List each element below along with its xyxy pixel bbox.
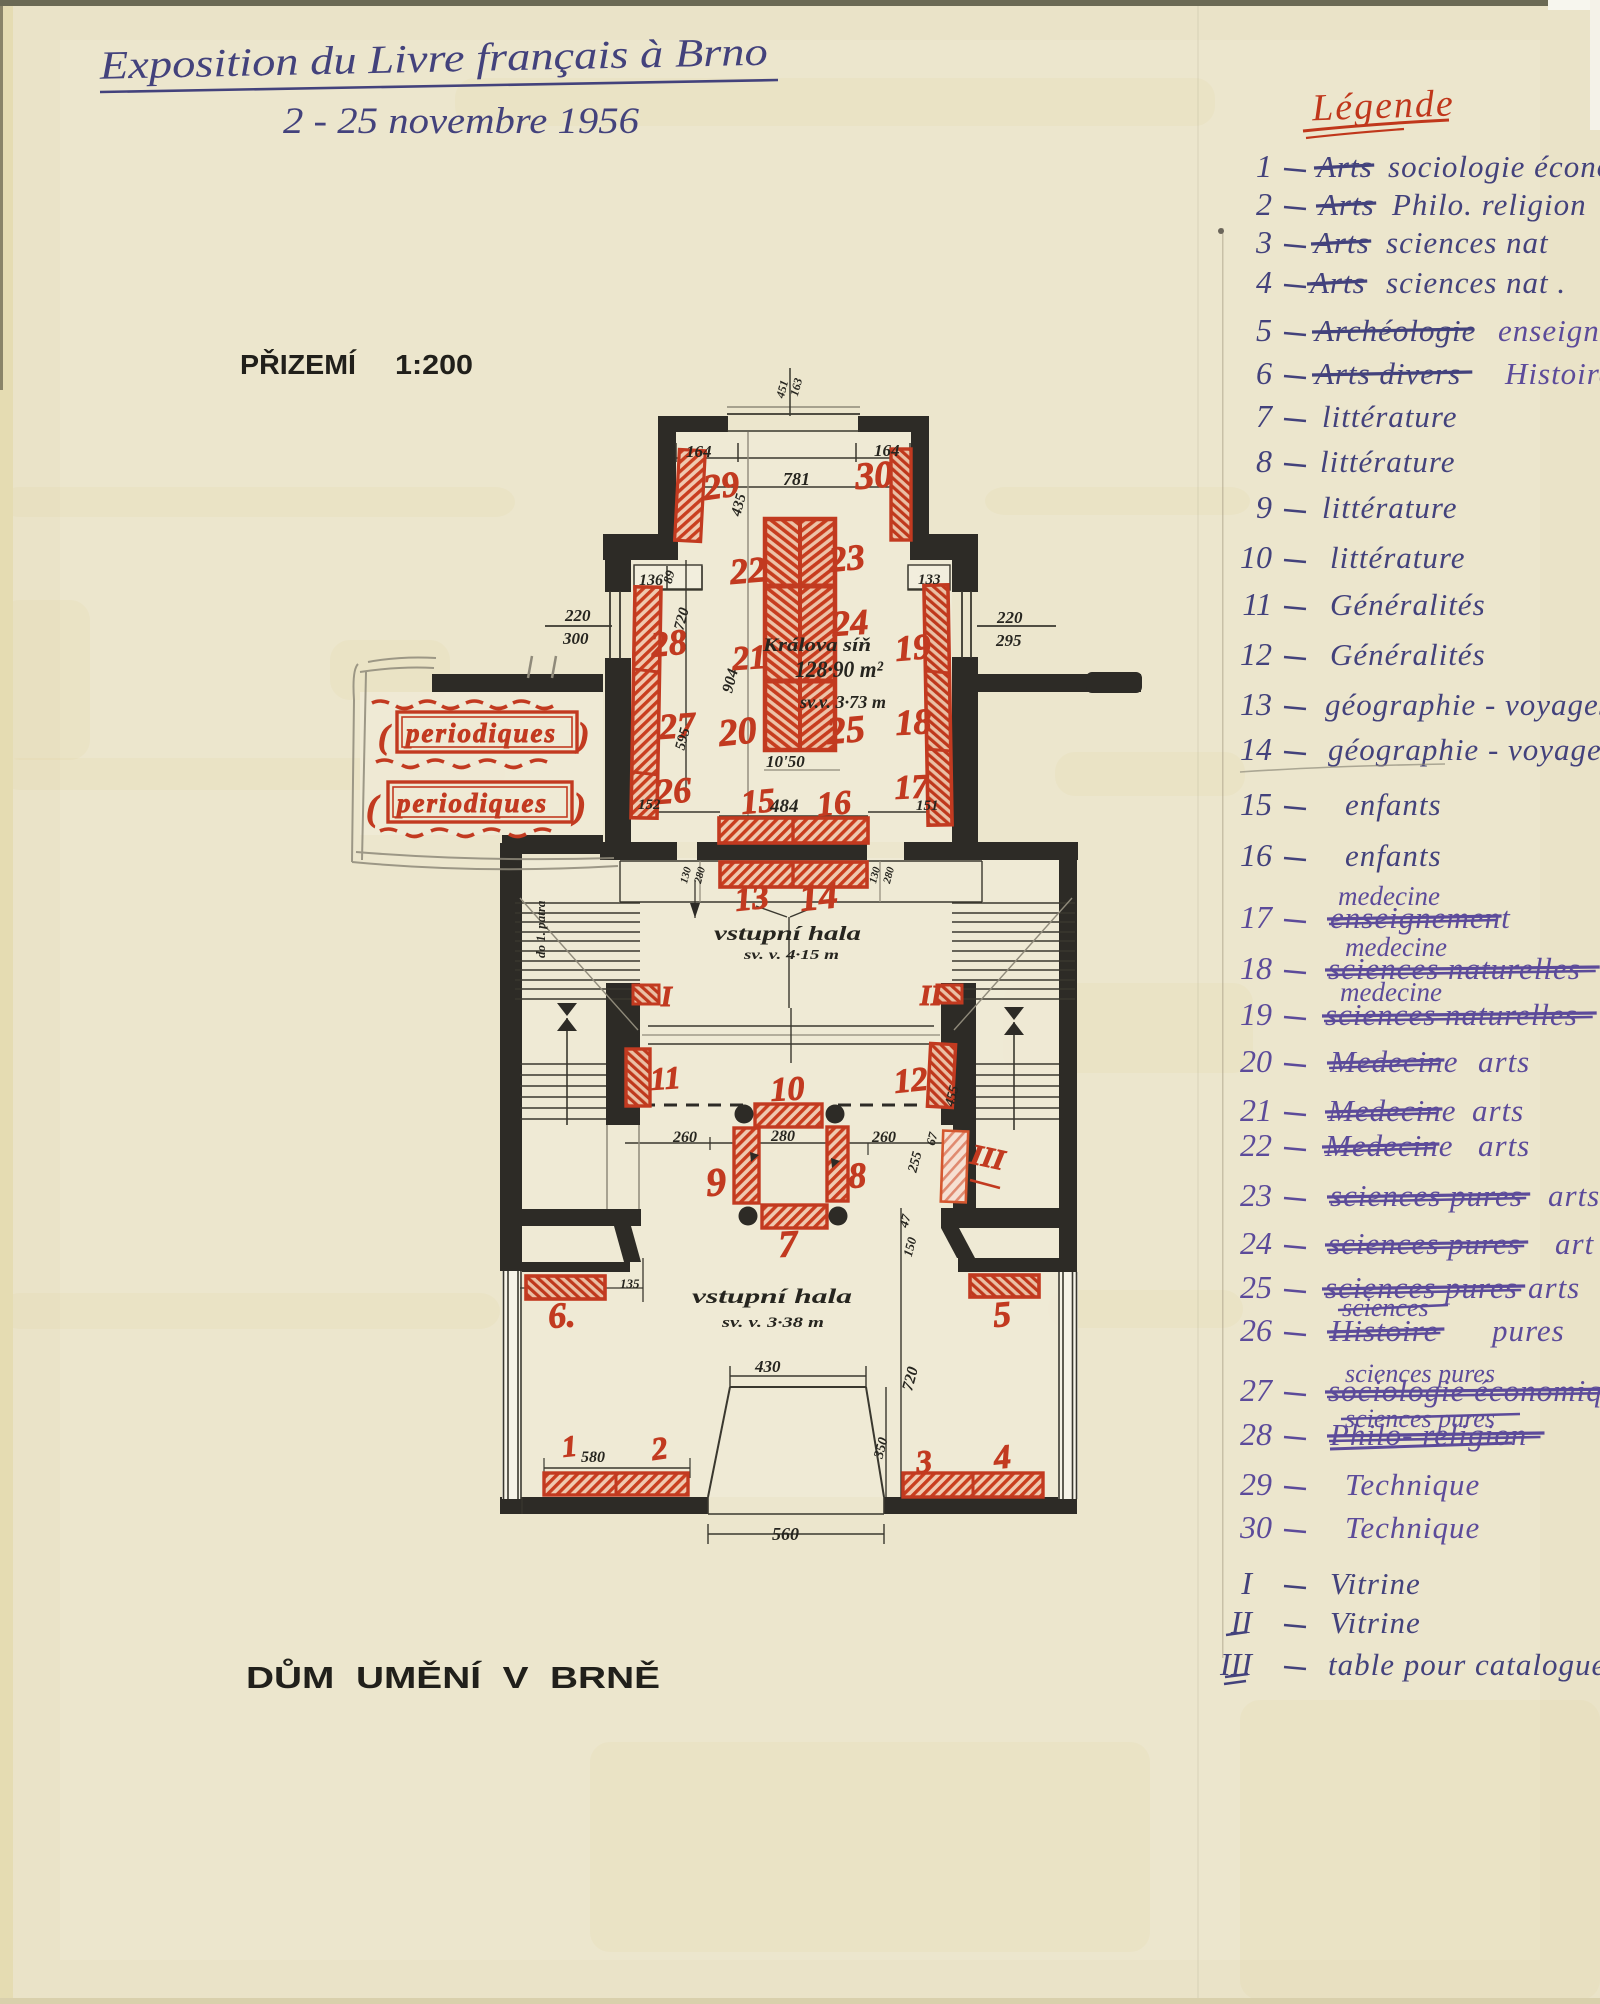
svg-text:do 1. patra: do 1. patra (533, 900, 548, 958)
svg-text:sciences nat .: sciences nat . (1386, 265, 1566, 300)
svg-text:17: 17 (1240, 899, 1274, 935)
svg-text:18: 18 (1240, 950, 1272, 986)
svg-text:151: 151 (916, 798, 939, 814)
svg-text:Králova síň: Králova síň (762, 635, 871, 656)
svg-text:DŮM UMĚNÍ V BRNĚ: DŮM UMĚNÍ V BRNĚ (246, 1657, 660, 1695)
svg-text:enfants: enfants (1345, 787, 1442, 822)
svg-text:260: 260 (672, 1129, 697, 1146)
svg-text:medecine: medecine (1340, 977, 1442, 1007)
svg-text:14: 14 (1240, 731, 1272, 767)
svg-text:11: 11 (1242, 586, 1272, 622)
svg-text:Technique: Technique (1345, 1510, 1480, 1545)
svg-text:29: 29 (1240, 1466, 1272, 1502)
svg-text:Philo. religion: Philo. religion (1391, 187, 1587, 222)
svg-text:vstupní hala: vstupní hala (714, 923, 861, 945)
svg-text:484: 484 (769, 796, 799, 817)
svg-text:sv. v. 3·38 m: sv. v. 3·38 m (721, 1315, 824, 1331)
svg-text:6.: 6. (547, 1294, 577, 1336)
svg-text:781: 781 (783, 469, 810, 489)
svg-text:10'50: 10'50 (766, 752, 805, 771)
svg-text:7: 7 (1256, 398, 1274, 434)
svg-text:medecine: medecine (1338, 881, 1440, 911)
svg-text:220: 220 (564, 606, 591, 625)
svg-text:1:200: 1:200 (395, 349, 473, 380)
svg-text:128·90 m²: 128·90 m² (795, 657, 884, 682)
svg-text:430: 430 (754, 1357, 781, 1376)
svg-text:periodiques: periodiques (404, 718, 557, 748)
svg-text:Vitrine: Vitrine (1330, 1566, 1421, 1601)
svg-text:220: 220 (996, 608, 1023, 627)
svg-text:133: 133 (918, 572, 941, 588)
svg-text:arts: arts (1548, 1178, 1600, 1213)
svg-text:18: 18 (894, 701, 932, 743)
svg-text:5: 5 (991, 1294, 1012, 1335)
svg-text:Généralités: Généralités (1330, 637, 1486, 672)
svg-text:10: 10 (1240, 539, 1272, 575)
svg-text:5: 5 (1256, 312, 1272, 348)
svg-text:21: 21 (1240, 1092, 1272, 1128)
svg-text:4: 4 (1256, 264, 1272, 300)
svg-text:sv. v. 4·15 m: sv. v. 4·15 m (743, 948, 840, 963)
svg-text:14: 14 (798, 874, 840, 920)
svg-text:20: 20 (716, 709, 759, 755)
svg-text:6: 6 (1256, 355, 1272, 391)
svg-text:8: 8 (1256, 443, 1272, 479)
svg-text:26: 26 (1240, 1312, 1272, 1348)
svg-text:PŘIZEMÍ: PŘIZEMÍ (240, 349, 357, 380)
svg-text:560: 560 (772, 1524, 799, 1544)
svg-text:arts: arts (1478, 1128, 1530, 1163)
svg-text:sociologie économ: sociologie économ (1388, 149, 1600, 184)
svg-text:enfants: enfants (1345, 838, 1442, 873)
svg-text:Généralités: Généralités (1330, 587, 1486, 622)
svg-text:19: 19 (1240, 996, 1272, 1032)
svg-text:géographie - voyages: géographie - voyages (1325, 687, 1600, 722)
svg-text:24: 24 (1240, 1225, 1272, 1261)
svg-text:8: 8 (847, 1155, 868, 1196)
svg-text:arts: arts (1528, 1270, 1580, 1305)
svg-text:10: 10 (769, 1070, 805, 1109)
svg-text:152: 152 (638, 797, 661, 813)
svg-text:littérature: littérature (1322, 399, 1458, 434)
svg-text:I: I (660, 982, 673, 1013)
svg-text:580: 580 (581, 1449, 605, 1466)
svg-text:19: 19 (893, 626, 932, 669)
svg-text:II: II (919, 981, 943, 1012)
svg-text:vstupní hala: vstupní hala (692, 1284, 852, 1308)
svg-text:littérature: littérature (1330, 540, 1466, 575)
svg-text:22: 22 (1240, 1127, 1272, 1163)
svg-text:164: 164 (686, 442, 712, 461)
svg-text:13: 13 (1240, 686, 1272, 722)
svg-text:I: I (1240, 1565, 1253, 1601)
svg-text:medecine: medecine (1345, 932, 1447, 962)
svg-text:12: 12 (892, 1061, 930, 1101)
svg-text:25: 25 (824, 708, 867, 753)
svg-text:13: 13 (733, 879, 771, 919)
svg-text:30: 30 (853, 453, 895, 498)
svg-text:15: 15 (1240, 786, 1272, 822)
svg-text:): ) (575, 717, 589, 754)
svg-text:Technique: Technique (1345, 1467, 1480, 1502)
svg-text:30: 30 (1239, 1509, 1272, 1545)
svg-text:164: 164 (874, 441, 900, 460)
svg-text:12: 12 (1240, 636, 1272, 672)
svg-text:16: 16 (815, 784, 852, 824)
svg-text:3: 3 (1255, 224, 1272, 260)
svg-text:28: 28 (1240, 1416, 1272, 1452)
svg-text:arts: arts (1478, 1044, 1530, 1079)
svg-text:periodiques: periodiques (395, 788, 548, 818)
svg-text:Légende: Légende (1310, 82, 1455, 129)
svg-text:2: 2 (1256, 186, 1272, 222)
svg-text:2 - 25 novembre 1956: 2 - 25 novembre 1956 (283, 101, 640, 142)
svg-text:23: 23 (826, 536, 867, 580)
svg-text:22: 22 (727, 549, 767, 592)
svg-text:enseign.: enseign. (1498, 313, 1600, 348)
svg-text:): ) (571, 786, 586, 826)
svg-text:géographie - voyages: géographie - voyages (1328, 732, 1600, 767)
svg-text:1: 1 (1256, 148, 1272, 184)
svg-text:20: 20 (1240, 1043, 1272, 1079)
svg-text:9: 9 (1256, 489, 1272, 525)
svg-text:sv.v. 3·73 m: sv.v. 3·73 m (799, 692, 886, 712)
svg-text:littérature: littérature (1320, 444, 1456, 479)
svg-text:16: 16 (1240, 837, 1272, 873)
svg-text:sciences pures: sciences pures (1345, 1359, 1495, 1388)
svg-text:300: 300 (562, 629, 589, 648)
svg-text:27: 27 (1240, 1372, 1274, 1408)
svg-text:25: 25 (1240, 1269, 1272, 1305)
svg-text:art: art (1555, 1226, 1595, 1261)
svg-text:23: 23 (1240, 1177, 1272, 1213)
svg-text:Vitrine: Vitrine (1330, 1605, 1421, 1640)
svg-text:9: 9 (704, 1159, 727, 1205)
svg-text:280: 280 (770, 1128, 795, 1145)
svg-text:sciences nat: sciences nat (1386, 225, 1549, 260)
svg-text:pures: pures (1490, 1313, 1565, 1348)
svg-text:295: 295 (995, 631, 1022, 650)
svg-text:arts: arts (1472, 1093, 1524, 1128)
svg-text:11: 11 (649, 1059, 682, 1097)
svg-text:table pour catalogues: table pour catalogues (1328, 1647, 1600, 1682)
svg-text:260: 260 (871, 1129, 896, 1146)
svg-text:135: 135 (620, 1276, 640, 1291)
svg-text:littérature: littérature (1322, 490, 1458, 525)
svg-text:Histoire: Histoire (1504, 356, 1600, 391)
